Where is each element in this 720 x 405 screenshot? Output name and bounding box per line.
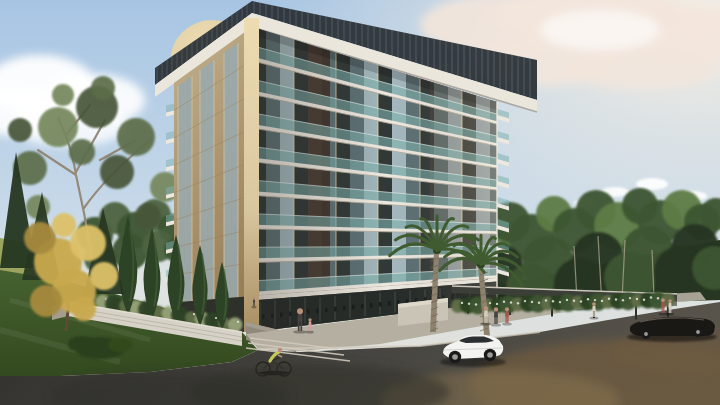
person-shadow <box>251 305 256 308</box>
person-leg <box>670 307 671 313</box>
hedge-flower <box>461 302 463 304</box>
person-torso <box>494 311 498 317</box>
hedge-flower <box>559 301 561 303</box>
person-leg <box>496 316 497 324</box>
foliage-cluster <box>100 155 134 189</box>
hedge-flower <box>657 297 659 299</box>
person-torso <box>308 321 311 326</box>
person-shadow <box>666 312 674 315</box>
person-torso <box>592 306 596 311</box>
hedge-flower <box>503 300 505 302</box>
person-leg <box>662 306 663 313</box>
foliage-cluster <box>69 139 95 165</box>
foliage-cluster <box>117 118 155 156</box>
person-shadow <box>502 322 512 325</box>
person-shadow <box>481 322 491 325</box>
person-head <box>297 308 303 314</box>
person-shadow <box>293 330 307 333</box>
foliage-cluster <box>8 118 32 142</box>
hedge-flower <box>587 298 589 300</box>
person-torso <box>668 302 671 307</box>
foliage-cluster <box>52 84 74 106</box>
golden-foliage <box>30 285 62 317</box>
architectural-render-scene <box>0 0 720 405</box>
person-head <box>668 299 672 303</box>
person-leg <box>506 316 507 323</box>
hedge-flower <box>622 299 624 301</box>
golden-foliage <box>72 297 96 321</box>
person-shadow <box>491 323 501 326</box>
hedge-flower <box>524 300 526 302</box>
person-torso <box>297 314 302 322</box>
person-head <box>505 307 509 311</box>
render-stage <box>0 0 720 405</box>
hedge-flower <box>594 299 596 301</box>
white-flower <box>237 321 239 323</box>
hedge-flower <box>468 302 470 304</box>
golden-foliage <box>52 213 76 237</box>
hedge-flower <box>552 300 554 302</box>
person-leg <box>494 316 495 324</box>
person-torso <box>484 310 488 316</box>
hedge-flower <box>580 300 582 302</box>
hedge-flower <box>573 299 575 301</box>
white-flower <box>215 317 217 319</box>
person-head <box>494 307 498 311</box>
golden-foliage <box>90 262 118 290</box>
person-head <box>308 318 311 321</box>
hedge-flower <box>601 300 603 302</box>
golden-foliage <box>24 222 56 254</box>
hedge-flower <box>475 303 477 305</box>
cyclist-shadow <box>259 371 289 375</box>
hedge-flower <box>566 299 568 301</box>
hedge-flower <box>489 302 491 304</box>
hedge-flower <box>650 296 652 298</box>
person-torso <box>253 299 255 302</box>
golden-foliage <box>70 225 106 261</box>
person-head <box>592 302 596 306</box>
person-leg <box>669 307 670 313</box>
person-leg <box>663 306 664 313</box>
hedge-flower <box>629 297 631 299</box>
person-shadow <box>306 330 314 333</box>
person-shadow <box>590 316 599 319</box>
person-leg <box>594 310 595 317</box>
person-leg <box>486 315 487 323</box>
person-head <box>484 306 488 310</box>
hedge-flower <box>608 297 610 299</box>
person-head <box>253 297 255 299</box>
person-leg <box>253 302 254 306</box>
person-torso <box>661 302 665 307</box>
hedge-flower <box>510 301 512 303</box>
person-leg <box>309 325 310 331</box>
hedge-flower <box>545 299 547 301</box>
foliage-cluster <box>38 107 78 147</box>
white-flower <box>193 313 195 315</box>
hedge-flower <box>538 301 540 303</box>
hedge-flower <box>531 301 533 303</box>
person-leg <box>507 316 508 323</box>
hedge-flower <box>636 298 638 300</box>
cyclist-head <box>278 348 283 353</box>
person-torso <box>505 311 509 317</box>
hedge-flower <box>615 298 617 300</box>
person-leg <box>310 325 311 331</box>
person-leg <box>300 321 302 331</box>
hedge-flower <box>496 303 498 305</box>
hedge-flower <box>643 298 645 300</box>
corner-pillar <box>244 18 259 332</box>
person-leg <box>298 321 300 331</box>
person-leg <box>484 315 485 323</box>
person-head <box>661 298 665 302</box>
person-leg <box>593 310 594 317</box>
foliage-cluster <box>91 76 115 100</box>
person-leg <box>254 302 255 306</box>
hedge-flower <box>517 302 519 304</box>
foliage-cluster <box>135 203 161 229</box>
